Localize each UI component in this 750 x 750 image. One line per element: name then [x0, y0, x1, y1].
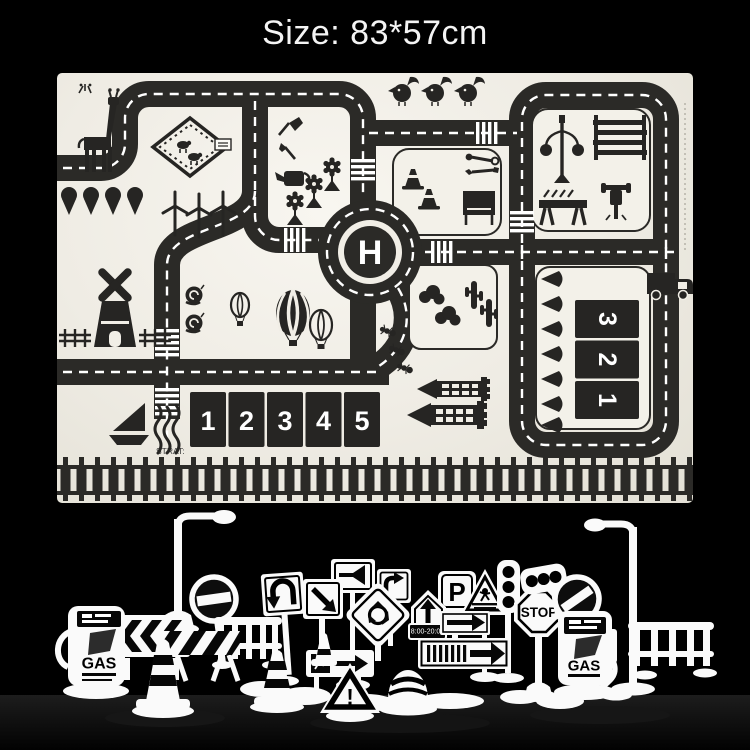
svg-text:GAS: GAS	[568, 658, 601, 675]
svg-text:4: 4	[316, 406, 331, 436]
traffic-signs-photo: P	[0, 503, 750, 750]
lane-arrow-board	[418, 638, 510, 669]
svg-text:2: 2	[239, 406, 254, 436]
helipad-letter: H	[358, 234, 383, 272]
play-mat: H	[57, 73, 693, 503]
svg-text:5: 5	[354, 406, 369, 436]
hot-air-balloon-icons	[231, 290, 332, 349]
railroad-track	[57, 457, 693, 501]
play-mat-graphic: H	[57, 73, 693, 503]
svg-text:8:00-20:00: 8:00-20:00	[411, 629, 445, 636]
paddock-fence-icon	[153, 118, 231, 176]
rail-fence-right	[628, 622, 717, 680]
small-cone	[311, 633, 337, 666]
product-photo: Size: 83*57cm	[0, 0, 750, 750]
striped-dome	[379, 670, 437, 716]
size-label: Size: 83*57cm	[0, 14, 750, 53]
svg-text:3: 3	[277, 406, 292, 436]
parking-side: 3 2 1	[575, 300, 639, 419]
svg-text:P: P	[448, 577, 465, 607]
castle-tower-icons	[407, 377, 490, 429]
svg-text:1: 1	[200, 406, 215, 436]
svg-text:STOP: STOP	[521, 605, 558, 620]
svg-text:GAS: GAS	[82, 656, 117, 673]
parking-row: 1 2 3 4 5	[190, 392, 380, 447]
sailboat-icon	[109, 403, 149, 445]
bird-icons	[388, 77, 485, 106]
gas-pump-left: GAS	[58, 606, 129, 699]
flower-icons	[286, 157, 340, 225]
wind-turbine-icons	[163, 192, 235, 237]
traffic-signs-graphic: P	[0, 503, 750, 750]
svg-text:1: 1	[593, 393, 621, 407]
roundabout-helipad: H	[318, 200, 422, 304]
garden-tools-icon	[275, 117, 309, 186]
row-trees-icon	[61, 187, 143, 215]
direction-arrow-plate	[440, 611, 490, 635]
svg-text:2: 2	[593, 353, 621, 367]
svg-text:!: !	[346, 685, 353, 710]
svg-text:3: 3	[593, 312, 621, 326]
snail-icons	[186, 285, 205, 332]
